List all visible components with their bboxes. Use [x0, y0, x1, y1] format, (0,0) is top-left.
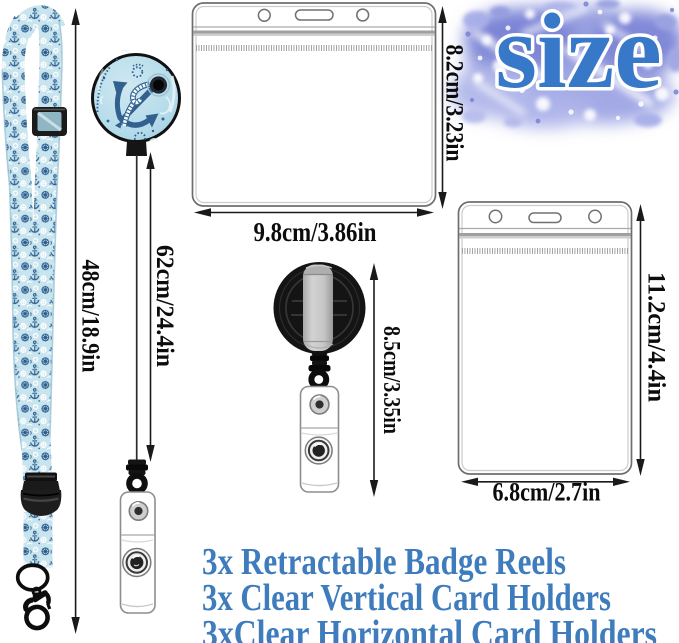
- svg-text:62cm/24.4in: 62cm/24.4in: [151, 245, 178, 367]
- svg-text:size: size: [495, 0, 661, 111]
- svg-text:8.5cm/3.35in: 8.5cm/3.35in: [378, 326, 404, 434]
- svg-text:3xClear Horizontal Card Holder: 3xClear Horizontal Card Holders: [202, 613, 657, 643]
- svg-text:9.8cm/3.86in: 9.8cm/3.86in: [254, 217, 377, 247]
- svg-text:8.2cm/3.23in: 8.2cm/3.23in: [441, 45, 468, 162]
- svg-text:6.8cm/2.7in: 6.8cm/2.7in: [493, 478, 601, 507]
- svg-text:11.2cm/4.4in: 11.2cm/4.4in: [643, 272, 670, 402]
- svg-text:48cm/18.9in: 48cm/18.9in: [77, 260, 104, 373]
